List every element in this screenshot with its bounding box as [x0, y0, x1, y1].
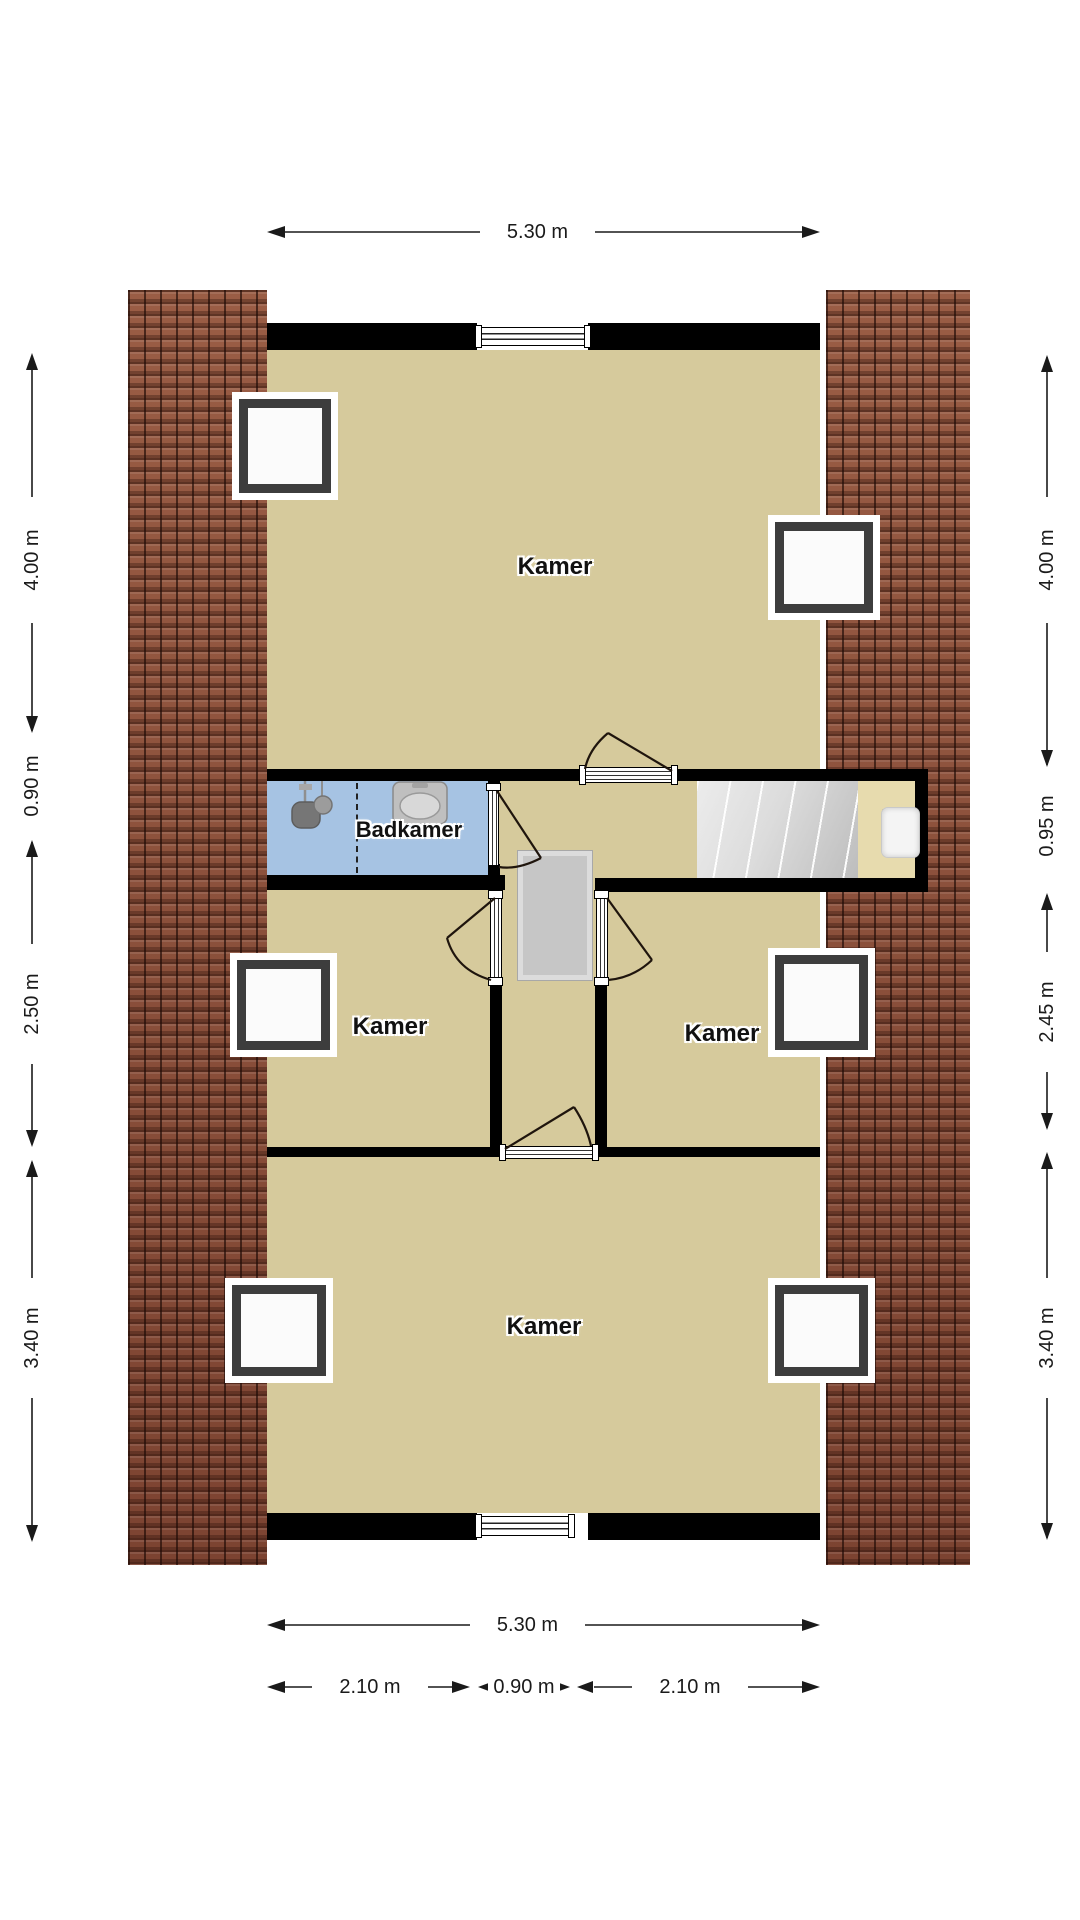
window-top-cap-left: [475, 325, 482, 348]
door-kamer-left: [490, 898, 502, 978]
dim-bottom-seg-left: 2.10 m: [312, 1675, 428, 1699]
door-kamer-left-cap-bottom: [488, 977, 503, 986]
wall-mid-upper-left: [267, 769, 581, 781]
dim-bottom-seg-right: 2.10 m: [632, 1675, 748, 1699]
wall-bottom-left: [267, 1513, 477, 1540]
dim-left-4: 3.40 m: [20, 1278, 44, 1398]
dim-right-3: 2.45 m: [1035, 952, 1059, 1072]
door-kamer-left-cap-top: [488, 890, 503, 899]
window-top-cap-right: [584, 325, 591, 348]
floor-plan: Kamer Badkamer Kamer Kamer Kamer 5.30 m …: [0, 0, 1080, 1920]
dim-right-4: 3.40 m: [1035, 1278, 1059, 1398]
room-label-kamer-right: Kamer: [642, 1020, 802, 1048]
door-top-kamer-cap-left: [579, 765, 586, 785]
skylight-window-top-right: [768, 515, 880, 620]
room-label-kamer-bottom: Kamer: [464, 1313, 624, 1341]
room-label-badkamer: Badkamer: [329, 817, 489, 843]
wall-under-stairs: [598, 878, 928, 892]
wall-lowerband-bottom-right: [597, 1147, 820, 1157]
skylight-window-mid-left: [230, 953, 337, 1057]
dim-left-3: 2.50 m: [20, 944, 44, 1064]
dim-left-2: 0.90 m: [20, 741, 44, 831]
wall-corridor-right-lower: [595, 983, 607, 1147]
window-bottom-cap-left: [475, 1514, 482, 1538]
room-label-kamer-left: Kamer: [310, 1013, 470, 1041]
door-bathroom-cap-top: [486, 783, 501, 791]
dim-right-2: 0.95 m: [1035, 781, 1059, 871]
door-kamer-right-cap-top: [594, 890, 609, 899]
wall-top-right: [588, 323, 820, 350]
wall-mid-upper-right: [676, 769, 928, 781]
door-kamer-bottom: [505, 1146, 593, 1159]
door-bathroom: [488, 790, 499, 866]
dim-right-1: 4.00 m: [1035, 500, 1059, 620]
room-label-kamer-top: Kamer: [475, 553, 635, 581]
wall-top-left: [267, 323, 477, 350]
skylight-window-top-left: [232, 392, 338, 500]
door-kamer-right: [596, 898, 608, 978]
dim-bottom-seg-middle: 0.90 m: [488, 1675, 560, 1699]
window-bottom: [480, 1516, 570, 1536]
wall-bathroom-bottom: [267, 875, 505, 890]
door-kamer-bottom-cap-left: [499, 1144, 506, 1161]
skylight-window-bottom-right: [768, 1278, 875, 1383]
skylight-window-bottom-left: [225, 1278, 333, 1383]
staircase: [697, 781, 858, 880]
door-top-kamer-cap-right: [671, 765, 678, 785]
window-bottom-cap-right: [568, 1514, 575, 1538]
power-outlet-box: [881, 807, 920, 858]
door-kamer-bottom-cap-right: [592, 1144, 599, 1161]
wall-corridor-left-lower: [490, 983, 502, 1147]
door-kamer-right-cap-bottom: [594, 977, 609, 986]
window-top: [480, 327, 585, 346]
door-top-kamer: [585, 767, 672, 783]
dim-left-1: 4.00 m: [20, 500, 44, 620]
wall-lowerband-bottom-left: [267, 1147, 501, 1157]
dim-bottom-width: 5.30 m: [470, 1613, 585, 1637]
dim-top-width: 5.30 m: [480, 220, 595, 244]
wall-bottom-right: [588, 1513, 820, 1540]
wall-bathroom-right-stub-bottom: [488, 864, 500, 890]
floor-opening: [518, 851, 592, 980]
